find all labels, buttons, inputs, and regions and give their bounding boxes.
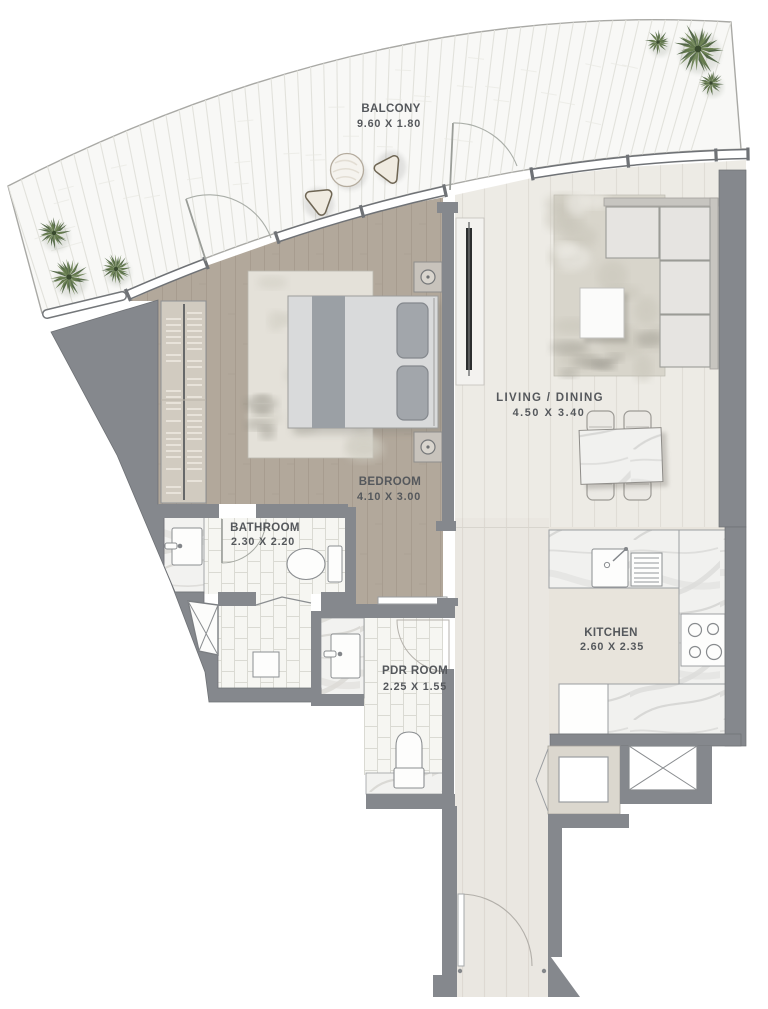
svg-text:2.60 X 2.35: 2.60 X 2.35: [580, 641, 644, 653]
svg-text:2.30 X 2.20: 2.30 X 2.20: [231, 536, 295, 548]
svg-text:9.60 X 1.80: 9.60 X 1.80: [357, 118, 421, 130]
svg-text:4.50 X 3.40: 4.50 X 3.40: [513, 407, 586, 419]
svg-text:BALCONY: BALCONY: [361, 103, 420, 115]
svg-text:BATHROOM: BATHROOM: [230, 522, 300, 534]
svg-text:PDR ROOM: PDR ROOM: [382, 665, 448, 677]
svg-text:LIVING / DINING: LIVING / DINING: [496, 392, 604, 404]
svg-text:KITCHEN: KITCHEN: [584, 627, 638, 639]
svg-text:BEDROOM: BEDROOM: [359, 476, 422, 488]
svg-text:4.10 X 3.00: 4.10 X 3.00: [357, 491, 421, 503]
svg-text:2.25 X 1.55: 2.25 X 1.55: [383, 681, 447, 693]
